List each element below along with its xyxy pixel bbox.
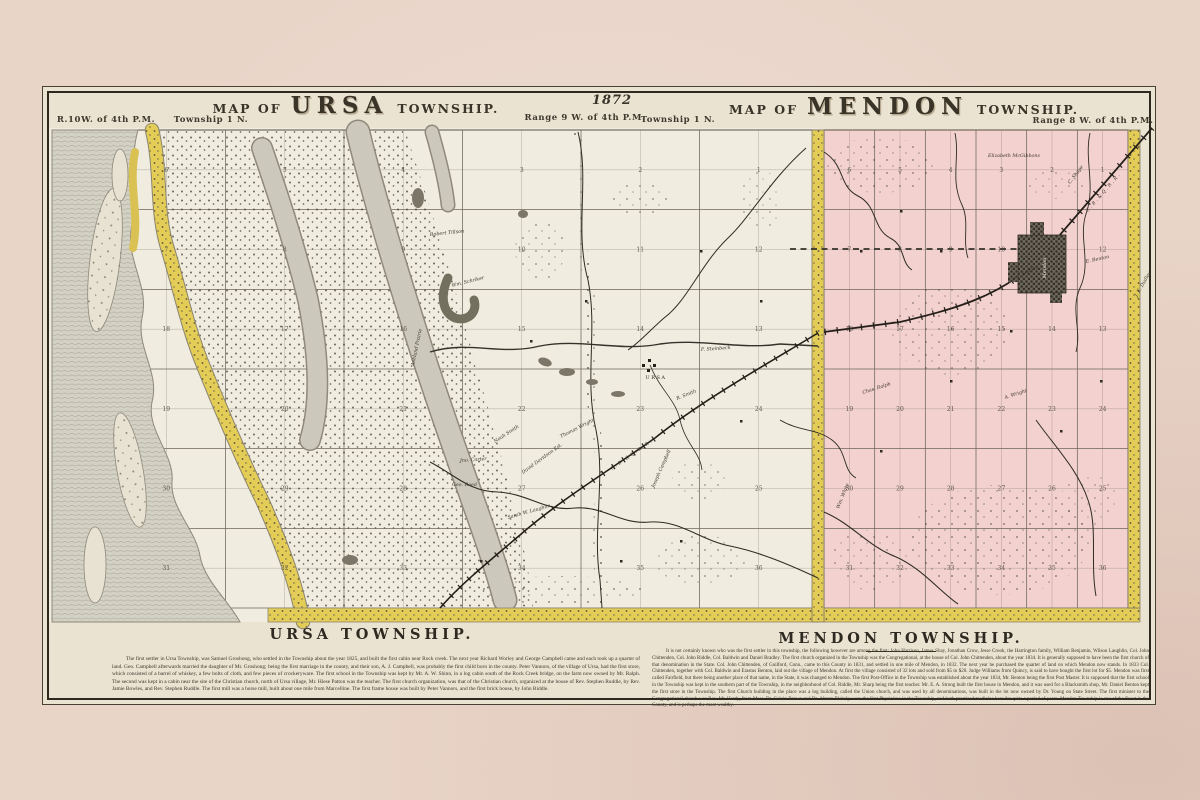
map-sheet-frame — [42, 86, 1156, 705]
atlas-page: { "sheet": { "year": "1872", "ursa": { "… — [0, 0, 1200, 800]
ursa-title-name: URSA — [291, 92, 389, 119]
ursa-history-text: The first settler in Ursa Township, was … — [112, 656, 640, 694]
mendon-title-prefix: MAP OF — [729, 102, 798, 117]
mendon-footer-title: MENDON TOWNSHIP. — [778, 630, 1023, 647]
ursa-map-title: MAP OF URSA TOWNSHIP. — [213, 92, 500, 119]
ursa-title-suffix: TOWNSHIP. — [397, 101, 499, 116]
ursa-range-label: Range 9 W. of 4th P.M. — [524, 113, 645, 123]
mendon-history-text: It is not certainly known who was the fi… — [652, 649, 1149, 710]
mendon-title-name: MENDON — [807, 93, 968, 120]
map-sheet-inner-border — [47, 91, 1151, 700]
ursa-meridian-label: R.10W. of 4th P.M. — [57, 115, 155, 125]
ursa-footer-title: URSA TOWNSHIP. — [270, 626, 475, 643]
mendon-title-suffix: TOWNSHIP. — [977, 102, 1079, 117]
mendon-range-label: Range 8 W. of 4th P.M. — [1032, 116, 1153, 126]
ursa-title-prefix: MAP OF — [213, 101, 282, 116]
mendon-map-title: MAP OF MENDON TOWNSHIP. — [729, 93, 1079, 120]
ursa-township-label: Township 1 N. — [174, 115, 248, 125]
map-year: 1872 — [592, 93, 632, 108]
mendon-township-label: Township 1 N. — [641, 115, 715, 125]
